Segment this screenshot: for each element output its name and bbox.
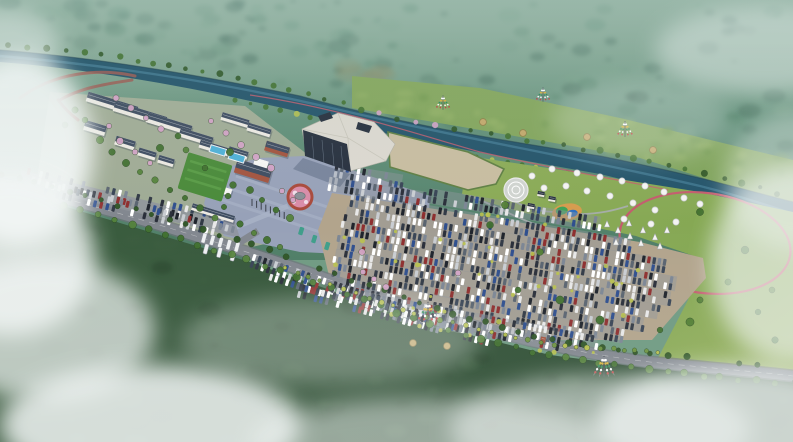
- bank-tree: [251, 79, 257, 85]
- flag: [600, 369, 602, 371]
- lot-edge-bush: [563, 343, 568, 348]
- bank-bush: [308, 115, 313, 120]
- lot-bush: [577, 275, 580, 278]
- flag: [448, 106, 450, 108]
- flag: [604, 362, 606, 364]
- lot-edge-bush: [514, 336, 518, 340]
- flag: [604, 359, 606, 361]
- flag: [608, 365, 610, 367]
- lot-bush: [488, 246, 491, 249]
- road-tree: [514, 344, 519, 349]
- bank-tree: [322, 97, 326, 101]
- dome-tent: [584, 188, 590, 194]
- cloud: [550, 80, 730, 160]
- lot-edge-bush: [622, 348, 626, 352]
- road-tree: [194, 242, 201, 249]
- bank-bush: [294, 111, 300, 117]
- circular-plaza: [504, 178, 528, 202]
- bank-tree: [183, 66, 188, 71]
- flag: [437, 104, 439, 106]
- lot-edge-bush: [574, 345, 578, 349]
- lot-bush: [394, 259, 398, 263]
- campus-tree: [182, 195, 187, 200]
- flag: [545, 99, 547, 101]
- road-tree: [266, 246, 273, 253]
- road-tree: [332, 271, 337, 276]
- cherry-blossom-tree: [128, 105, 134, 111]
- flag: [545, 92, 547, 94]
- flag: [599, 362, 601, 364]
- dome-tent: [630, 200, 636, 206]
- cherry-blossom-tree: [267, 164, 274, 171]
- bank-tree: [82, 49, 88, 55]
- meadow-patch: [418, 94, 429, 102]
- road-tree: [531, 334, 536, 339]
- lot-bush: [496, 215, 499, 218]
- bank-tree: [136, 59, 141, 64]
- meadow-patch: [404, 112, 420, 118]
- road-tree: [145, 226, 152, 233]
- flag: [446, 102, 448, 104]
- road-tree: [349, 278, 354, 283]
- road-tree: [162, 232, 168, 238]
- flag: [546, 94, 548, 96]
- bank-tree: [236, 76, 241, 81]
- lot-edge-bush: [296, 271, 300, 275]
- flag: [547, 96, 549, 98]
- flag: [540, 99, 542, 101]
- lot-edge-bush: [552, 343, 557, 348]
- bank-bush: [263, 104, 269, 110]
- campus-tree: [273, 207, 279, 213]
- dome-tent: [652, 207, 658, 213]
- flag: [441, 100, 443, 102]
- flag: [445, 107, 447, 109]
- lot-bush: [418, 263, 421, 266]
- dome-tent: [563, 183, 569, 189]
- bank-tree: [64, 48, 69, 53]
- road-tree: [217, 233, 222, 238]
- flag: [610, 368, 612, 370]
- flag: [598, 365, 600, 367]
- lot-edge-bush: [632, 348, 637, 353]
- bank-tree: [683, 167, 688, 172]
- cherry-blossom-tree: [223, 130, 229, 136]
- campus-tree: [122, 159, 129, 166]
- meadow-patch: [703, 149, 711, 155]
- flag: [600, 366, 602, 368]
- flag: [596, 368, 598, 370]
- lot-edge-bush: [490, 330, 494, 334]
- cherry-blossom-tree: [132, 149, 138, 155]
- road-tree: [665, 352, 671, 358]
- flag: [439, 102, 441, 104]
- bank-tree: [286, 87, 292, 93]
- lot-edge-bush: [318, 279, 322, 283]
- lot-bush: [636, 268, 640, 272]
- bank-tree: [150, 61, 156, 67]
- campus-tree: [251, 230, 256, 235]
- thatched-hut: [520, 130, 527, 137]
- campus-tree: [137, 169, 142, 174]
- lot-edge-bush: [306, 275, 310, 279]
- road-tree: [402, 295, 407, 300]
- lot-edge-bush: [283, 266, 287, 270]
- flag: [606, 362, 608, 364]
- lot-bush: [610, 279, 615, 284]
- bank-tree: [200, 70, 204, 74]
- flag: [599, 372, 601, 374]
- dome-tent: [549, 166, 555, 172]
- campus-tree: [183, 147, 189, 153]
- road-tree: [616, 348, 620, 352]
- road-tree: [494, 339, 502, 347]
- road-tree: [499, 324, 506, 331]
- lot-bush: [552, 285, 556, 289]
- cherry-tree: [432, 122, 438, 128]
- lawn-tree: [556, 296, 564, 304]
- lot-edge-bush: [477, 328, 481, 332]
- lot-bush: [360, 238, 365, 243]
- dome-tent: [673, 219, 679, 225]
- meadow-patch: [474, 110, 481, 117]
- forest-blob: [199, 277, 208, 283]
- flag: [541, 94, 543, 96]
- lot-edge-bush: [539, 341, 543, 345]
- lot-bush: [463, 242, 466, 245]
- campus-tree: [109, 149, 116, 156]
- flag: [541, 92, 543, 94]
- flag: [440, 100, 442, 102]
- meadow-patch: [443, 112, 454, 121]
- dome-tent: [619, 178, 625, 184]
- road-tree: [579, 356, 586, 363]
- campus-tree: [259, 197, 264, 202]
- road-tree: [611, 361, 617, 367]
- bank-tree: [451, 126, 457, 132]
- road-tree: [550, 336, 556, 342]
- flag: [444, 102, 446, 104]
- meadow-patch: [355, 93, 368, 98]
- lot-bush: [556, 272, 559, 275]
- road-tree: [515, 329, 520, 334]
- lawn-tree: [596, 316, 604, 324]
- bank-tree: [358, 107, 364, 113]
- road-tree: [115, 204, 120, 209]
- campus-tree: [197, 205, 204, 212]
- road-tree: [684, 353, 691, 360]
- cherry-blossom-tree: [383, 284, 389, 290]
- lot-edge-bush: [328, 282, 332, 286]
- bank-tree: [342, 100, 346, 104]
- bank-tree: [217, 70, 224, 77]
- flag: [444, 104, 446, 106]
- flag: [539, 94, 541, 96]
- lawn-tree: [501, 201, 508, 208]
- cherry-blossom-tree: [253, 154, 260, 161]
- cherry-blossom-tree: [279, 188, 285, 194]
- flag: [601, 362, 603, 364]
- flag: [443, 98, 445, 100]
- lawn-tree: [487, 222, 494, 229]
- campus-tree: [152, 177, 159, 184]
- bank-tree: [394, 117, 399, 122]
- lot-edge-bush: [354, 291, 358, 295]
- bank-bush: [277, 107, 283, 113]
- flag: [443, 100, 445, 102]
- campus-tree: [167, 187, 173, 193]
- bank-tree: [561, 142, 566, 147]
- road-tree: [229, 251, 236, 258]
- dome-tent: [697, 201, 703, 207]
- road-tree: [134, 206, 139, 211]
- lot-edge-bush: [656, 351, 660, 355]
- flag: [543, 92, 545, 94]
- lot-bush: [629, 299, 633, 303]
- lot-bush: [478, 273, 481, 276]
- flag: [440, 107, 442, 109]
- lot-edge-bush: [525, 337, 530, 342]
- lot-edge-bush: [584, 345, 590, 351]
- dome-tent: [529, 173, 535, 179]
- meadow-patch: [429, 106, 446, 114]
- flag: [536, 98, 538, 100]
- road-tree: [367, 282, 372, 287]
- campus-tree: [230, 182, 237, 189]
- bank-bush: [249, 102, 252, 105]
- dome-tent: [607, 193, 613, 199]
- cherry-blossom-tree: [116, 137, 123, 144]
- flag: [594, 371, 596, 373]
- forest-blob: [280, 386, 297, 396]
- lot-bush: [496, 319, 501, 324]
- lot-bush: [538, 348, 542, 352]
- road-tree: [248, 241, 254, 247]
- road-tree: [316, 266, 322, 272]
- road-tree: [310, 279, 316, 285]
- lawn-tree: [515, 287, 521, 293]
- meadow-patch: [396, 90, 413, 97]
- campus-tree: [225, 193, 231, 199]
- lot-bush: [614, 282, 618, 286]
- flag: [540, 92, 542, 94]
- dome-tent: [642, 183, 648, 189]
- cherry-blossom-tree: [143, 115, 148, 120]
- lot-bush: [429, 295, 432, 298]
- flag: [607, 372, 609, 374]
- lot-bush: [343, 236, 347, 240]
- road-tree: [263, 264, 268, 269]
- flag: [544, 96, 546, 98]
- lot-bush: [621, 313, 626, 318]
- campus-tree: [286, 214, 293, 221]
- lot-edge-bush: [612, 346, 617, 351]
- road-tree: [483, 319, 489, 325]
- flag: [441, 102, 443, 104]
- forest-blob: [124, 232, 144, 244]
- forest-blob: [152, 261, 173, 274]
- flag: [612, 371, 614, 373]
- flag: [605, 366, 607, 368]
- lawn-tree: [697, 297, 703, 303]
- road-tree: [645, 365, 653, 373]
- meadow-patch: [394, 104, 403, 109]
- bank-tree: [524, 138, 529, 143]
- road-tree: [200, 226, 207, 233]
- road-tree: [234, 236, 241, 243]
- flower-bed-emblem: [288, 185, 312, 209]
- cherry-blossom-tree: [147, 160, 152, 165]
- forest-blob: [428, 387, 438, 394]
- flag: [548, 98, 550, 100]
- lot-bush: [537, 284, 541, 288]
- flag: [543, 90, 545, 92]
- campus-tree: [96, 136, 103, 143]
- cloud: [180, 295, 480, 385]
- dome-tent: [621, 216, 627, 222]
- road-tree: [283, 254, 289, 260]
- lot-bush: [490, 260, 493, 263]
- road-tree: [628, 364, 634, 370]
- bank-tree: [701, 170, 708, 177]
- lot-bush: [592, 351, 595, 354]
- cherry-blossom-tree: [238, 142, 245, 149]
- lot-bush: [394, 230, 397, 233]
- cherry-blossom-tree: [371, 276, 377, 282]
- cherry-blossom-tree: [455, 270, 461, 276]
- cherry-blossom-tree: [106, 123, 111, 128]
- scene: [0, 0, 793, 442]
- flag: [606, 369, 608, 371]
- lot-bush: [570, 289, 573, 292]
- campus-tree: [156, 144, 163, 151]
- road-tree: [95, 211, 101, 217]
- lawn-tree: [696, 208, 703, 215]
- aerial-rendering: [0, 0, 793, 442]
- lot-bush: [604, 264, 608, 268]
- forest-blob: [444, 373, 453, 379]
- thatched-hut: [480, 119, 487, 126]
- road-tree: [149, 212, 154, 217]
- road-tree: [112, 217, 117, 222]
- flag: [440, 104, 442, 106]
- dome-tent: [648, 221, 654, 227]
- road-tree: [545, 351, 552, 358]
- road-tree: [183, 221, 188, 226]
- lot-bush: [333, 262, 338, 267]
- lawn-tree: [537, 249, 544, 256]
- cherry-blossom-tree: [158, 126, 164, 132]
- road-tree: [178, 235, 185, 242]
- campus-tree: [246, 186, 253, 193]
- bank-tree: [99, 52, 104, 57]
- bank-tree: [166, 62, 172, 68]
- bank-tree: [117, 53, 123, 59]
- dome-tent: [681, 195, 687, 201]
- dome-tent: [574, 170, 580, 176]
- bank-tree: [505, 133, 511, 139]
- lot-bush: [486, 212, 491, 217]
- cherry-blossom-tree: [359, 249, 366, 256]
- lot-bush: [511, 293, 515, 297]
- campus-tree: [226, 148, 233, 155]
- flag: [540, 96, 542, 98]
- cherry-blossom-tree: [113, 95, 119, 101]
- campus-tree: [237, 221, 244, 228]
- flag: [445, 100, 447, 102]
- bank-tree: [306, 91, 311, 96]
- cherry-blossom-tree: [290, 197, 295, 202]
- road-tree: [243, 255, 250, 262]
- bank-tree: [271, 83, 277, 89]
- bank-tree: [489, 131, 494, 136]
- lot-edge-bush: [644, 349, 648, 353]
- cherry-blossom-tree: [208, 118, 213, 123]
- forest-blob: [143, 279, 152, 285]
- lot-bush: [378, 241, 381, 244]
- road-tree: [99, 198, 104, 203]
- flag: [537, 96, 539, 98]
- flag: [544, 94, 546, 96]
- road-tree: [466, 316, 472, 322]
- road-tree: [211, 248, 217, 254]
- flag: [447, 104, 449, 106]
- lot-edge-bush: [341, 287, 346, 292]
- forest-blob: [473, 354, 490, 365]
- bank-bush: [233, 98, 238, 103]
- lot-bush: [530, 252, 534, 256]
- road-tree: [167, 217, 173, 223]
- road-tree: [530, 350, 536, 356]
- lot-bush: [620, 282, 623, 285]
- road-tree: [562, 354, 569, 361]
- campus-tree: [263, 236, 270, 243]
- meadow-patch: [541, 120, 549, 128]
- bank-tree: [468, 128, 472, 132]
- campus-tree: [175, 133, 181, 139]
- bank-tree: [541, 140, 546, 145]
- lot-edge-bush: [503, 333, 507, 337]
- lot-bush: [480, 213, 484, 217]
- campus-tree: [202, 165, 208, 171]
- bank-tree: [667, 163, 672, 168]
- campus-tree: [212, 215, 218, 221]
- cherry-tree: [376, 110, 381, 115]
- dome-tent: [661, 189, 667, 195]
- campus-tree: [277, 244, 283, 250]
- cherry-blossom-tree: [360, 269, 366, 275]
- dome-tent: [541, 185, 547, 191]
- lot-edge-bush: [598, 346, 603, 351]
- cherry-tree: [413, 120, 418, 125]
- road-tree: [129, 221, 137, 229]
- lot-bush: [438, 238, 442, 242]
- campus-tree: [221, 204, 226, 209]
- lawn-tree: [657, 327, 663, 333]
- lawn-tree: [686, 318, 694, 326]
- road-tree: [277, 267, 284, 274]
- dome-tent: [597, 174, 603, 180]
- flag: [436, 106, 438, 108]
- lot-bush: [543, 223, 547, 227]
